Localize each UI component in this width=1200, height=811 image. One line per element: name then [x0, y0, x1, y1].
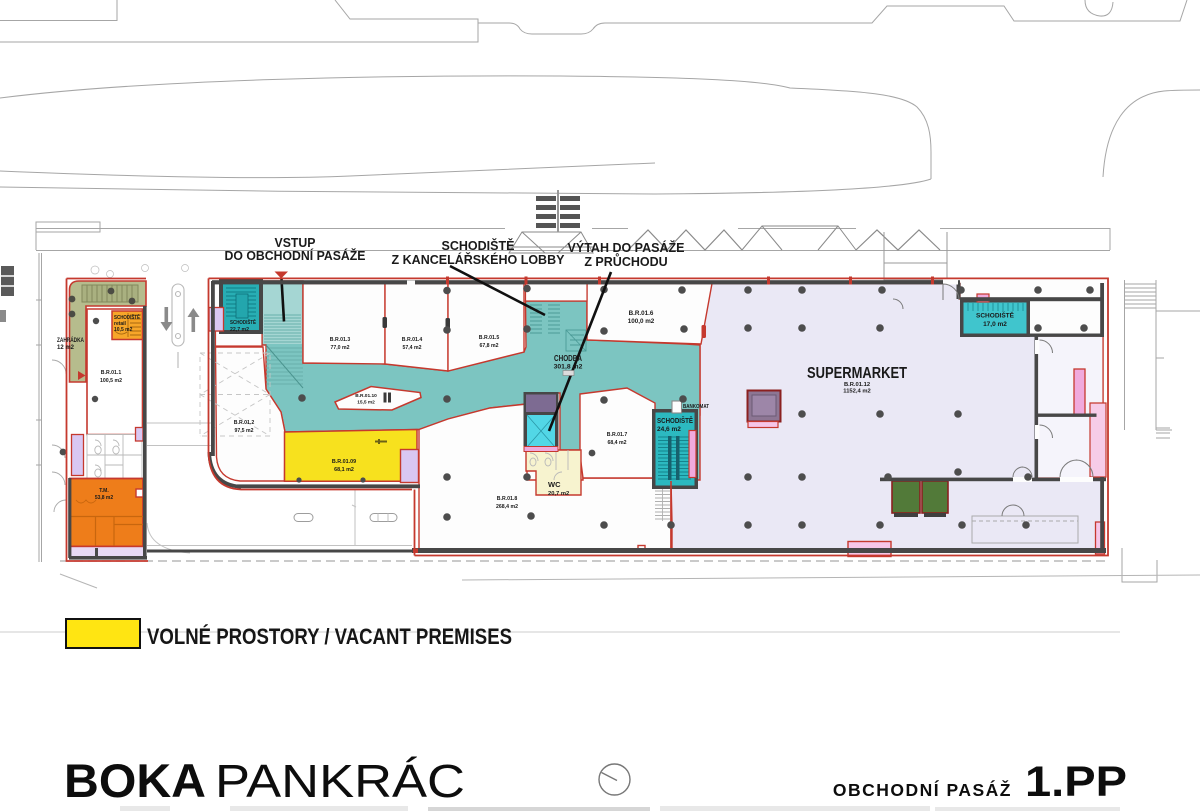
svg-text:1152,4 m2: 1152,4 m2 — [843, 389, 870, 395]
svg-text:B.R.01.10: B.R.01.10 — [355, 393, 377, 399]
svg-text:BOKA: BOKA — [64, 754, 206, 807]
svg-text:DO OBCHODNÍ PASÁŽE: DO OBCHODNÍ PASÁŽE — [225, 248, 366, 263]
svg-text:68,1 m2: 68,1 m2 — [334, 467, 354, 473]
svg-text:100,0 m2: 100,0 m2 — [628, 318, 655, 325]
svg-text:301,8 m2: 301,8 m2 — [554, 364, 583, 371]
svg-text:68,4 m2: 68,4 m2 — [607, 440, 626, 446]
svg-text:57,4 m2: 57,4 m2 — [402, 345, 421, 351]
svg-text:B.R.01.09: B.R.01.09 — [332, 459, 356, 465]
svg-text:53,8 m2: 53,8 m2 — [95, 495, 114, 501]
svg-text:Z PRŮCHODU: Z PRŮCHODU — [584, 253, 667, 269]
svg-text:CHODBA: CHODBA — [554, 354, 582, 363]
svg-text:VOLNÉ PROSTORY / VACANT PREMIS: VOLNÉ PROSTORY / VACANT PREMISES — [147, 624, 512, 649]
svg-text:SCHODIŠTĚ: SCHODIŠTĚ — [230, 318, 256, 326]
svg-text:22,7 m2: 22,7 m2 — [230, 327, 249, 333]
svg-text:OBCHODNÍ PASÁŽ: OBCHODNÍ PASÁŽ — [833, 779, 1012, 800]
svg-text:67,8 m2: 67,8 m2 — [479, 343, 498, 349]
svg-text:PANKRÁC: PANKRÁC — [215, 755, 465, 807]
svg-text:77,0 m2: 77,0 m2 — [330, 345, 349, 351]
svg-text:100,5 m2: 100,5 m2 — [100, 378, 122, 384]
svg-text:BANKOMAT: BANKOMAT — [683, 404, 710, 410]
svg-text:B.R.01.4: B.R.01.4 — [402, 337, 423, 343]
svg-text:B.R.01.5: B.R.01.5 — [479, 335, 500, 341]
svg-text:B.R.01.7: B.R.01.7 — [607, 432, 628, 438]
svg-text:WC: WC — [548, 480, 561, 489]
svg-text:VSTUP: VSTUP — [275, 236, 316, 250]
svg-text:97,5 m2: 97,5 m2 — [234, 428, 253, 434]
svg-text:SCHODIŠTĚ: SCHODIŠTĚ — [114, 313, 141, 321]
svg-text:B.R.01.6: B.R.01.6 — [629, 310, 654, 317]
svg-text:10,5 m2: 10,5 m2 — [114, 327, 133, 333]
svg-text:SCHODIŠTĚ: SCHODIŠTĚ — [657, 416, 693, 425]
svg-text:B.R.01.8: B.R.01.8 — [497, 496, 518, 502]
svg-text:268,4 m2: 268,4 m2 — [496, 504, 518, 510]
svg-text:Z KANCELÁŘSKÉHO LOBBY: Z KANCELÁŘSKÉHO LOBBY — [392, 252, 566, 267]
svg-text:24,6 m2: 24,6 m2 — [657, 426, 681, 433]
svg-text:B.R.01.3: B.R.01.3 — [330, 337, 351, 343]
svg-text:B.R.01.1: B.R.01.1 — [101, 370, 122, 376]
svg-text:12 m2: 12 m2 — [57, 345, 75, 351]
svg-text:1.PP: 1.PP — [1025, 758, 1127, 806]
svg-text:15,5 m2: 15,5 m2 — [357, 400, 375, 406]
svg-text:B.R.01.2: B.R.01.2 — [234, 420, 255, 426]
svg-text:T.M.: T.M. — [99, 488, 109, 494]
svg-text:ZAHRÁDKA: ZAHRÁDKA — [57, 337, 85, 344]
svg-text:20,7 m2: 20,7 m2 — [548, 491, 569, 497]
svg-text:VÝTAH DO PASÁŽE: VÝTAH DO PASÁŽE — [568, 240, 685, 255]
svg-text:SUPERMARKET: SUPERMARKET — [807, 365, 907, 382]
svg-text:SCHODIŠTĚ: SCHODIŠTĚ — [442, 238, 515, 253]
svg-text:17,0 m2: 17,0 m2 — [983, 321, 1007, 328]
svg-text:SCHODIŠTĚ: SCHODIŠTĚ — [976, 311, 1014, 320]
svg-text:B.R.01.12: B.R.01.12 — [844, 382, 870, 388]
